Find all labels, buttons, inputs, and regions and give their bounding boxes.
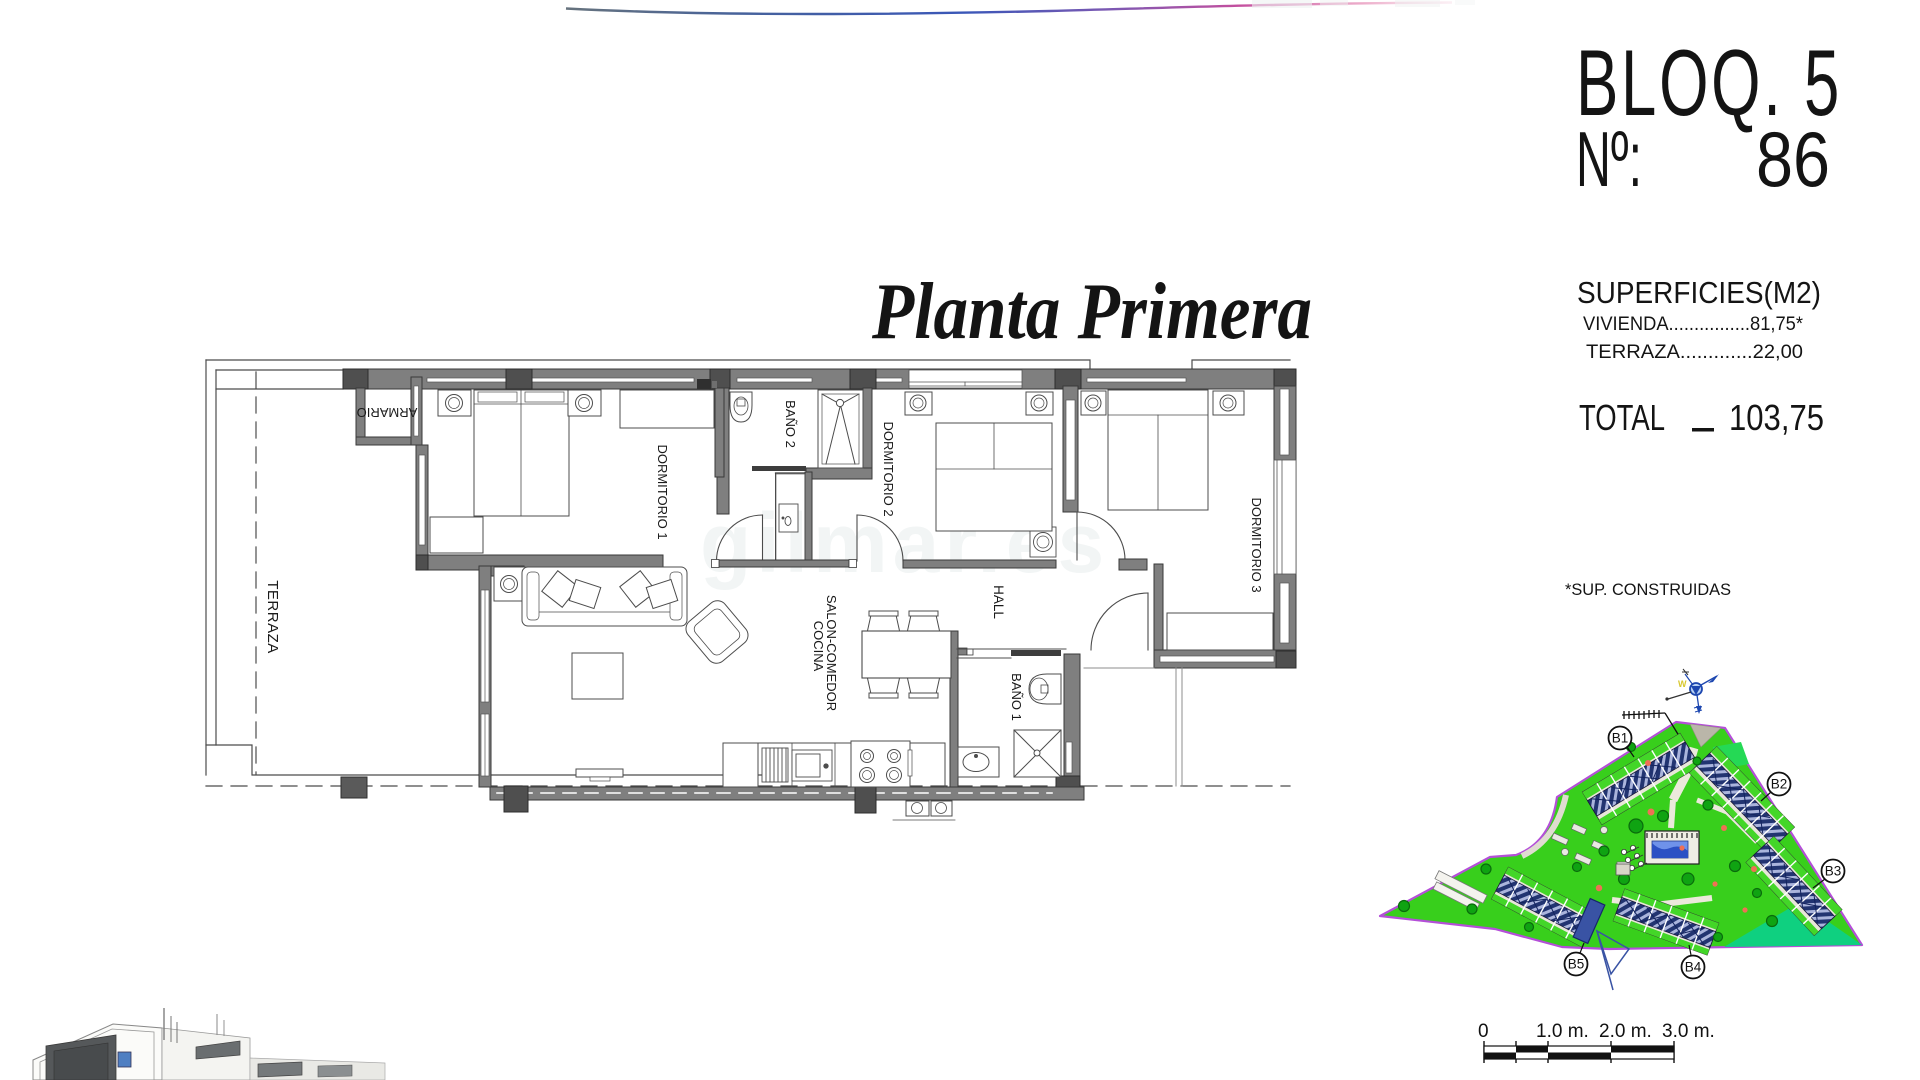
svg-text:2.0 m.: 2.0 m. — [1599, 1021, 1652, 1042]
svg-text:B4: B4 — [1685, 960, 1702, 975]
svg-text:*SUP. CONSTRUIDAS: *SUP. CONSTRUIDAS — [1565, 580, 1731, 599]
svg-text:BAÑO 2: BAÑO 2 — [783, 400, 798, 448]
svg-text:DORMITORIO 3: DORMITORIO 3 — [1249, 497, 1264, 592]
svg-text:DORMITORIO 1: DORMITORIO 1 — [655, 444, 670, 539]
svg-text:BAÑO 1: BAÑO 1 — [1009, 673, 1024, 721]
svg-text:TOTAL: TOTAL — [1579, 397, 1665, 438]
svg-text:HALL: HALL — [991, 585, 1006, 619]
svg-text:Nº:: Nº: — [1576, 115, 1642, 203]
svg-text:W: W — [1678, 679, 1687, 689]
svg-text:DORMITORIO 2: DORMITORIO 2 — [881, 421, 896, 516]
svg-text:TERRAZA.............22,00: TERRAZA.............22,00 — [1586, 341, 1803, 363]
svg-text:3.0 m.: 3.0 m. — [1662, 1021, 1715, 1042]
svg-text:B1: B1 — [1612, 731, 1629, 746]
svg-text:Planta Primera: Planta Primera — [871, 268, 1312, 356]
svg-text:VIVIENDA................81,75*: VIVIENDA................81,75* — [1583, 313, 1803, 335]
svg-text:103,75: 103,75 — [1729, 397, 1824, 438]
svg-text:86: 86 — [1756, 115, 1830, 203]
svg-text:TERRAZA: TERRAZA — [264, 580, 281, 654]
svg-text:B2: B2 — [1771, 777, 1788, 792]
svg-text:1.0 m.: 1.0 m. — [1536, 1021, 1589, 1042]
svg-text:0: 0 — [1478, 1021, 1489, 1042]
svg-text:B5: B5 — [1568, 957, 1585, 972]
svg-text:ARMARIO: ARMARIO — [357, 405, 418, 420]
svg-text:SUPERFICIES(M2): SUPERFICIES(M2) — [1577, 275, 1821, 310]
svg-text:B3: B3 — [1825, 864, 1842, 879]
svg-text:COCINA: COCINA — [811, 621, 826, 672]
